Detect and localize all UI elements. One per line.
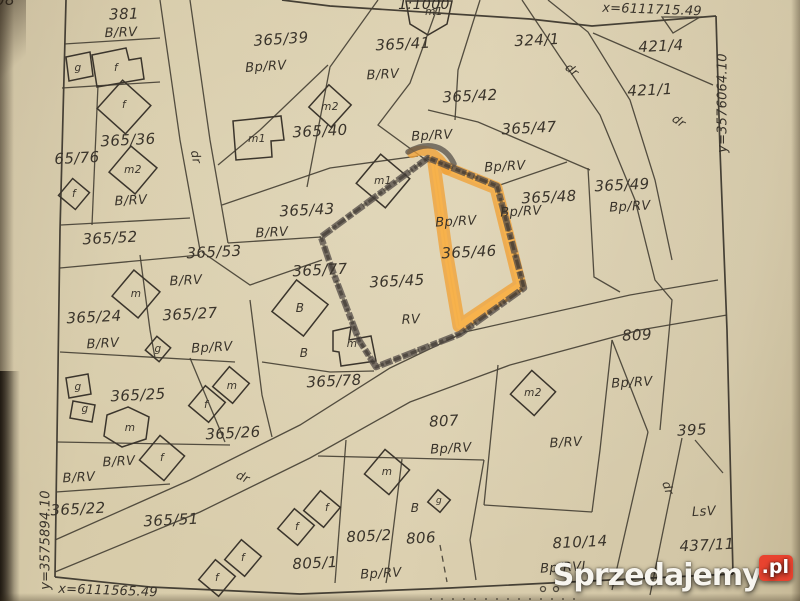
parcel-number: 809: [622, 325, 653, 345]
building-label: m: [131, 288, 142, 300]
land-use-label: B: [300, 346, 309, 360]
parcel-number: 808: [0, 0, 15, 9]
parcel-number: 365/47: [501, 118, 557, 139]
parcel-number: 805/2: [346, 526, 392, 546]
land-use-label: Bp/RV: [411, 127, 454, 144]
parcel-number: 395: [677, 420, 708, 440]
building-label: m: [347, 338, 358, 350]
land-use-label: Bp/RV: [500, 203, 543, 220]
land-use-label-highlighted: Bp/RV: [435, 213, 478, 230]
land-use-label: B/RV: [549, 435, 583, 452]
building-label: m: [125, 422, 136, 434]
land-use-label: Bp/RV: [609, 198, 652, 215]
land-use-label: RV: [401, 312, 421, 328]
coordinate-y-right: y=3576064.10: [716, 53, 731, 154]
parcel-number: 365/51: [143, 510, 199, 531]
parcel-number: 810/14: [552, 532, 608, 553]
dashed-boundary: [440, 545, 447, 582]
building-label: f: [122, 99, 128, 111]
parcel-number: 365/39: [253, 28, 309, 50]
building-label: f: [114, 62, 120, 74]
land-use-label: Bp/RV: [245, 58, 288, 76]
building-label: m2: [321, 101, 339, 113]
building-label: g: [74, 381, 81, 393]
road-label-dr: dr: [234, 468, 253, 487]
building-label: m1: [248, 133, 266, 145]
map-labels: 381 B/RV g f f 365/36 65/76 m2 f B/RV 36…: [0, 0, 735, 600]
parcel-number: 365/43: [279, 200, 335, 221]
scale-text-clipped: 1:1000: [398, 0, 450, 13]
building-label: f: [325, 502, 331, 514]
building-label: f: [295, 521, 301, 533]
watermark-brand: Sprzedajemy: [553, 558, 761, 593]
building-label: m: [382, 466, 393, 478]
parcel-number: 365/26: [205, 423, 261, 444]
road-label-dr: dr: [562, 60, 582, 80]
parcel-number: 365/53: [186, 242, 242, 263]
land-use-label: Bp/RV: [430, 440, 473, 457]
building-label: m: [227, 380, 238, 392]
road-label-dr: dr: [188, 149, 205, 166]
parcel-number: 65/76: [54, 148, 100, 168]
parcel-number: 365/40: [292, 121, 348, 142]
land-use-label: Bp/RV: [191, 339, 234, 356]
land-use-label: Bp/RV: [360, 565, 403, 582]
land-use-label: Bp/RV: [484, 158, 527, 175]
parcel-number: 381: [109, 4, 139, 23]
parcel-number: 807: [429, 411, 460, 431]
parcel-number: 365/45: [369, 271, 425, 292]
land-use-label: B/RV: [86, 336, 120, 353]
land-use-label: B/RV: [366, 67, 400, 84]
parcel-number: 806: [406, 528, 437, 548]
parcel-number: 365/27: [162, 304, 218, 325]
building-label: m2: [524, 387, 542, 399]
parcel-number: 324/1: [514, 30, 560, 50]
parcel-number: 365/49: [594, 175, 650, 196]
land-use-label: B/RV: [114, 193, 148, 210]
land-use-label: B: [411, 501, 420, 515]
parcel-number: 365/41: [375, 34, 431, 55]
building-label: g: [81, 403, 88, 415]
parcel-number: 421/1: [627, 80, 673, 100]
building-label: f: [160, 452, 166, 464]
road-label-dr: dr: [659, 479, 677, 497]
building-label: g: [74, 62, 81, 74]
parcel-number: 365/36: [100, 130, 156, 151]
land-use-label: B/RV: [104, 25, 138, 41]
building-label: f: [241, 552, 247, 564]
land-use-label: B/RV: [169, 273, 203, 290]
parcel-number: 365/52: [82, 228, 138, 249]
building-label: g: [436, 496, 442, 506]
building-label: B: [296, 301, 305, 315]
land-use-label: B/RV: [62, 470, 96, 487]
parcel-number: 365/42: [442, 86, 498, 107]
building-label: f: [215, 572, 221, 584]
parcel-number: 365/78: [306, 371, 362, 392]
building-label: f: [72, 188, 78, 200]
building-label: m1: [374, 175, 392, 187]
parcel-number: 437/11: [679, 535, 735, 556]
coordinate-x-top: x=6111715.49: [601, 1, 702, 20]
map-canvas: 381 B/RV g f f 365/36 65/76 m2 f B/RV 36…: [0, 0, 800, 601]
parcel-number: 365/77: [292, 260, 348, 281]
parcel-number: 365/24: [66, 307, 122, 328]
land-use-label: B/RV: [102, 454, 136, 471]
building-label: g: [154, 343, 161, 355]
parcel-number: 805/1: [292, 553, 338, 573]
parcel-number-highlighted: 365/46: [441, 242, 497, 263]
cadastral-map-photo: 381 B/RV g f f 365/36 65/76 m2 f B/RV 36…: [0, 0, 800, 601]
parcel-number: 365/25: [110, 385, 166, 406]
building-label: m2: [124, 164, 142, 176]
watermark: Sprzedajemy.pl: [553, 558, 795, 593]
land-use-label: Bp/RV: [611, 374, 654, 391]
coordinate-x-bottom: x=6111565.49: [57, 582, 158, 601]
land-use-label: B/RV: [255, 225, 289, 242]
parcel-number: 365/22: [50, 499, 106, 520]
watermark-tld-badge: .pl: [759, 555, 793, 581]
parcel-number: 421/4: [638, 36, 684, 56]
parcel-boundaries: [55, 0, 727, 599]
coordinate-y-left: y=3575894.10: [39, 490, 54, 591]
land-use-label: LsV: [692, 504, 718, 520]
road-label-dr: dr: [670, 111, 690, 131]
